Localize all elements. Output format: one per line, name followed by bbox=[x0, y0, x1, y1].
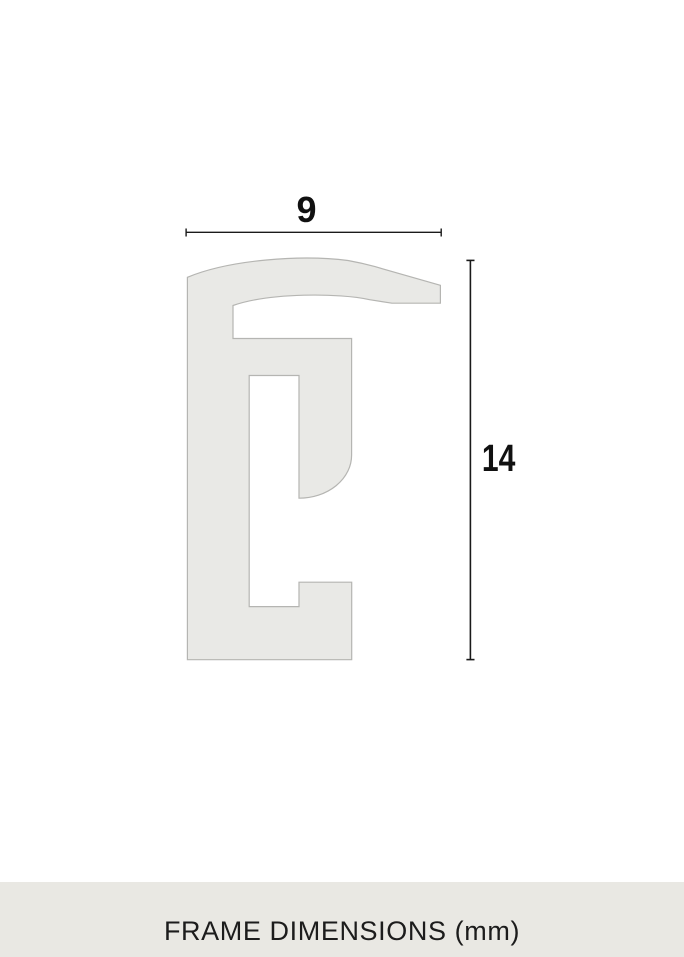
svg-text:14: 14 bbox=[482, 438, 515, 480]
svg-text:9: 9 bbox=[296, 189, 316, 230]
